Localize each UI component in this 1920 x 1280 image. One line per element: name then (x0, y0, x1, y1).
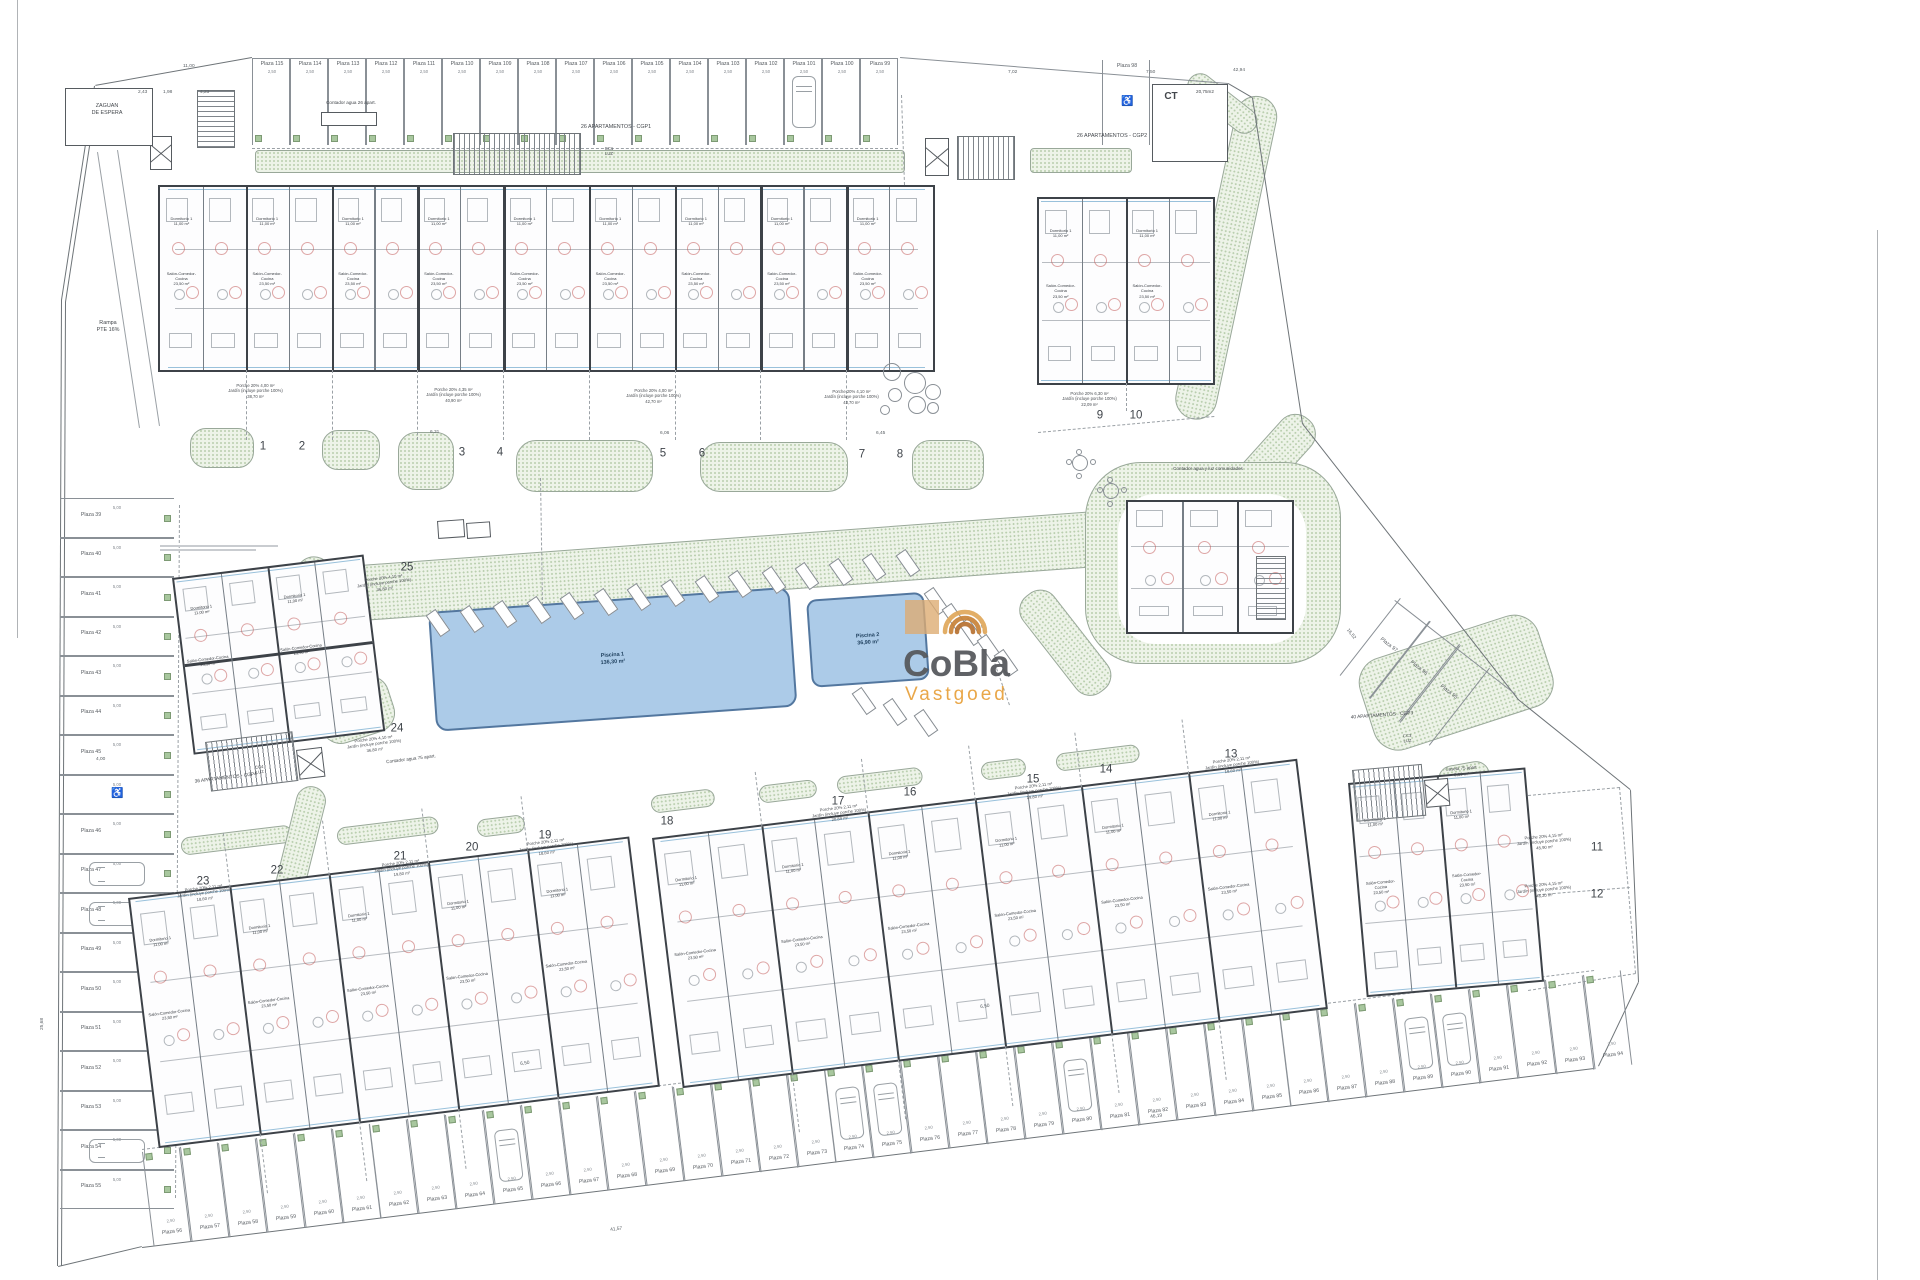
table-furniture (1062, 928, 1074, 940)
parking-stall: Plaza 415,00 (60, 577, 174, 617)
parcel-boundary-line (1518, 699, 1631, 790)
table-furniture (461, 998, 473, 1010)
bed-furniture (931, 817, 962, 852)
parking-stall-label: Plaza 51 (66, 1025, 116, 1032)
room-label: Salón-Comedor-Cocina 23,50 m² (990, 907, 1041, 923)
table-furniture (688, 974, 700, 986)
building-number: 20 (466, 841, 479, 856)
planter-square (411, 1120, 419, 1128)
parking-stall-label: Plaza 102 (747, 61, 785, 68)
unit-divider-wall (889, 187, 890, 370)
planter-square (486, 1111, 494, 1119)
door-swing-arc (1429, 891, 1443, 905)
room-label: Salón-Comedor-Cocina 23,50 m² (777, 933, 828, 949)
door-swing-arc (386, 242, 399, 255)
dimension-label: 2,50 (265, 1202, 304, 1212)
dimension-label: 2,50 (519, 69, 557, 74)
sofa-furniture (340, 696, 367, 713)
planter-square (638, 1092, 646, 1100)
unit-divider-wall (546, 187, 547, 370)
parking-stall-label: Plaza 97 (1371, 631, 1405, 660)
sofa-furniture (247, 708, 274, 725)
door-swing-arc (1051, 254, 1064, 267)
sofa-furniture (469, 333, 493, 348)
planter-square (331, 135, 338, 142)
outdoor-chair (1107, 477, 1113, 483)
building-number: 14 (1100, 763, 1113, 778)
door-swing-arc (703, 967, 717, 981)
parking-stall: Plaza 465,00 (60, 814, 174, 854)
garden-area-label: Porche 20% 4,35 m² Jardín (incluye porch… (406, 387, 501, 403)
building-number: 12 (1591, 888, 1604, 903)
door-swing-arc (424, 997, 438, 1011)
door-swing-arc (276, 1015, 290, 1029)
room-label: Dormitorio 1 11,00 m² (591, 216, 630, 226)
parking-stall-label: Plaza 63 (418, 1194, 457, 1205)
bed-furniture (229, 581, 255, 606)
garden-area-label: Porche 20% 6,30 m² Jardín (incluye porch… (1042, 391, 1137, 407)
door-swing-arc (601, 242, 614, 255)
room-label: Salón-Comedor-Cocina 23,50 m² (1447, 870, 1487, 889)
staircase (197, 90, 235, 148)
door-swing-arc (214, 668, 228, 682)
door-swing-arc (172, 242, 185, 255)
car-icon (1442, 1011, 1472, 1066)
table-furniture (431, 289, 442, 300)
dimension-label: 2,50 (329, 69, 367, 74)
parking-stall-label: Plaza 76 (911, 1134, 950, 1145)
dimension-label: 2,50 (1251, 1081, 1290, 1091)
car-windshield-line (879, 1091, 895, 1099)
dimension-label: 2,50 (720, 1146, 759, 1156)
table-furniture (1374, 900, 1386, 912)
door-swing-arc (252, 958, 266, 972)
bush (908, 396, 926, 414)
room-label: Salón-Comedor-Cocina 23,50 m² (1097, 894, 1148, 910)
room-label: Salón-Comedor-Cocina 23,50 m² (591, 271, 630, 287)
dimension-label: 2,50 (405, 69, 443, 74)
room-label: Salón-Comedor-Cocina 23,50 m² (677, 271, 716, 287)
table-furniture (903, 289, 914, 300)
area-label-ct_area: 20,75m2 (1188, 89, 1222, 95)
site-plan-canvas: Plaza 1152,50Plaza 1142,50Plaza 1132,50P… (0, 0, 1920, 1280)
sofa-furniture (1116, 979, 1148, 1002)
parking-stall-label: Plaza 40 (66, 551, 116, 558)
table-furniture (1115, 922, 1127, 934)
parking-stall-label: Plaza 72 (759, 1152, 798, 1163)
sofa-furniture (340, 333, 364, 348)
room-label: Salón-Comedor-Cocina 23,50 m² (543, 958, 590, 974)
footnote-text-placeholder (160, 549, 256, 551)
swirl-arcs-icon (903, 592, 999, 638)
room-label: Dormitorio 1 11,00 m² (248, 216, 287, 226)
sofa-furniture (689, 1032, 721, 1055)
planter-square (711, 135, 718, 142)
door-swing-arc (573, 979, 587, 993)
dimension-label: 1,98 (163, 90, 172, 96)
cgp2-block: Dormitorio 1 11,00 m²Salón-Comedor-Cocin… (1037, 197, 1215, 385)
table-furniture (688, 289, 699, 300)
garden-divider-line (322, 821, 330, 876)
table-furniture (860, 289, 871, 300)
planter-square (787, 135, 794, 142)
parking-stall-label: Plaza 43 (66, 670, 116, 677)
parcel-boundary-line (97, 152, 140, 428)
bed-furniture (381, 198, 402, 222)
sofa-furniture (1063, 986, 1095, 1009)
parcel-boundary-line (95, 57, 252, 86)
parking-stall-label: Plaza 39 (66, 512, 116, 519)
door-swing-arc (785, 897, 799, 911)
planter-square (373, 1125, 381, 1133)
room-label: Salón-Comedor-Cocina 23,50 m² (279, 642, 323, 658)
planter-square (749, 135, 756, 142)
dimension-label: 11,00 (183, 64, 195, 70)
car-icon (792, 76, 816, 128)
disabled-parking-icon: ♿ (111, 787, 123, 800)
parking-stall-label: Plaza 91 (1480, 1064, 1519, 1075)
planter-square (164, 554, 171, 561)
door-swing-arc (1215, 572, 1228, 585)
table-furniture (312, 1016, 324, 1028)
garden-divider-line (332, 370, 333, 440)
door-swing-arc (472, 242, 485, 255)
dimension-label: 2,50 (861, 69, 899, 74)
door-swing-arc (203, 964, 217, 978)
door-swing-arc (687, 242, 700, 255)
building-number: 11 (1591, 841, 1603, 856)
sofa-furniture (849, 1012, 881, 1035)
bush (925, 384, 941, 400)
planter-square (524, 1106, 532, 1114)
outdoor-chair (1076, 473, 1082, 479)
table-furniture (1200, 575, 1211, 586)
table-furniture (1460, 893, 1472, 905)
planter-square (221, 1143, 229, 1151)
room-label: Dormitorio 1 11,00 m² (848, 216, 887, 226)
room-label: Salón-Comedor-Cocina 23,50 m² (1041, 283, 1080, 299)
table-furniture (302, 289, 313, 300)
door-swing-arc (558, 242, 571, 255)
planter-square (164, 752, 171, 759)
elevator-shaft (150, 136, 172, 170)
planter-square (145, 1153, 153, 1161)
door-swing-arc (1129, 915, 1143, 929)
outdoor-chair (1097, 487, 1103, 493)
door-swing-arc (732, 904, 746, 918)
door-swing-arc (429, 242, 442, 255)
planter-square (445, 135, 452, 142)
car-icon (1063, 1058, 1093, 1113)
door-swing-arc (451, 934, 465, 948)
sofa-furniture (1177, 346, 1201, 361)
dimension-label: 2,50 (606, 1160, 645, 1170)
area-label-contador26: Contador agua 26 apart. (306, 100, 396, 106)
parking-stall-label: Plaza 99 (861, 61, 899, 68)
unit-divider-wall (803, 187, 804, 370)
sofa-furniture (611, 1037, 641, 1060)
parking-stall-label: Plaza 84 (1214, 1096, 1253, 1107)
dimension-label: 2,50 (443, 69, 481, 74)
sofa-furniture (297, 333, 321, 348)
parking-stall-label: Plaza 49 (66, 946, 116, 953)
parking-stall-label: Plaza 113 (329, 61, 367, 68)
dimension-label: 7,50 (1146, 70, 1155, 76)
room-label: Dormitorio 1 11,00 m² (162, 216, 201, 226)
dimension-label: 2,50 (557, 69, 595, 74)
parking-stall-label: Plaza 60 (304, 1208, 343, 1219)
dimension-label: 4,00 (96, 757, 105, 763)
room-label: Dormitorio 1 11,00 m² (505, 216, 544, 226)
parcel-boundary-line (1630, 790, 1639, 982)
bed-furniture (717, 844, 748, 879)
green-area (516, 440, 653, 492)
parking-stall-label: Plaza 56 (153, 1227, 192, 1238)
area-label-cc1: CC1 LUZ (596, 146, 622, 157)
car-windshield-line (98, 1143, 104, 1158)
planter-square (1586, 976, 1594, 984)
sofa-furniture (902, 1006, 934, 1029)
dimension-label: 2,50 (253, 69, 291, 74)
parking-stall-label: Plaza 86 (1290, 1087, 1329, 1098)
sofa-furniture (254, 333, 278, 348)
planter-square (676, 1088, 684, 1096)
parking-stall-label: Plaza 107 (557, 61, 595, 68)
car-icon (1404, 1016, 1434, 1071)
building-number: 10 (1130, 409, 1143, 424)
bed-furniture (896, 198, 917, 222)
room-label: Dormitorio 1 11,00 m² (1441, 807, 1481, 821)
parking-stall-label: Plaza 42 (66, 630, 116, 637)
dimension-label: 2,50 (1137, 1095, 1176, 1105)
building-number: 18 (661, 815, 674, 830)
door-swing-arc (1289, 895, 1303, 909)
unit-divider-wall (632, 187, 633, 370)
bed-furniture (1037, 804, 1068, 839)
car-icon (494, 1128, 524, 1183)
building-number: 3 (459, 446, 465, 461)
sofa-furniture (1276, 960, 1308, 983)
planter-square (255, 135, 262, 142)
dimension-label: 2,50 (1213, 1085, 1252, 1095)
table-furniture (742, 968, 754, 980)
table-furniture (1168, 915, 1180, 927)
dimension-label: 2,50 (1099, 1099, 1138, 1109)
planter-square (1434, 994, 1442, 1002)
dimension-label: 2,50 (633, 69, 671, 74)
dimension-label: 2,50 (341, 1192, 380, 1202)
table-furniture (260, 289, 271, 300)
dimension-label: 41,57 (610, 1227, 623, 1235)
dimension-label: 2,50 (1289, 1076, 1328, 1086)
dimension-label: 2,50 (1516, 1048, 1555, 1058)
table-furniture (1222, 909, 1234, 921)
sofa-furniture (201, 714, 228, 731)
dimension-label: 5,00 (60, 703, 174, 708)
outdoor-chair (1107, 501, 1113, 507)
dimension-label: 2,50 (1175, 1090, 1214, 1100)
parking-stall-label: Plaza 68 (608, 1171, 647, 1182)
parking-stall-label: Plaza 50 (66, 986, 116, 993)
green-area (650, 788, 716, 814)
table-furniture (817, 289, 828, 300)
door-swing-arc (325, 1009, 339, 1023)
disabled-parking-icon: ♿ (1121, 95, 1133, 108)
sofa-furniture (1193, 606, 1223, 616)
parking-stall-label: Plaza 73 (797, 1147, 836, 1158)
table-furniture (1053, 302, 1064, 313)
sofa-furniture (597, 333, 621, 348)
table-furniture (294, 662, 306, 674)
parking-stall-label: Plaza 88 (1366, 1078, 1405, 1089)
parking-stall-label: Plaza 58 (229, 1217, 268, 1228)
dimension-label: 2,50 (1554, 1043, 1593, 1053)
green-area (398, 432, 454, 490)
door-swing-arc (529, 286, 542, 299)
parcel-boundary-line (1877, 230, 1878, 1280)
planter-square (164, 515, 171, 522)
unit-divider-wall (718, 187, 719, 370)
planter-square (164, 673, 171, 680)
door-swing-arc (998, 871, 1012, 885)
door-swing-arc (615, 286, 628, 299)
outdoor-table (1072, 455, 1088, 471)
table-furniture (1275, 902, 1287, 914)
door-swing-arc (916, 941, 930, 955)
garden-area-label: Porche 20% 4,00 m² Jardín (incluye porch… (208, 383, 303, 399)
table-furniture (1008, 935, 1020, 947)
door-swing-arc (572, 286, 585, 299)
sofa-furniture (1503, 939, 1528, 958)
door-swing-arc (215, 242, 228, 255)
planter-square (1510, 985, 1518, 993)
parking-stall-label: Plaza 70 (684, 1161, 723, 1172)
table-furniture (517, 289, 528, 300)
parking-stall-label: Plaza 44 (66, 709, 116, 716)
green-area (912, 440, 984, 490)
door-swing-arc (550, 922, 564, 936)
planter-square (293, 135, 300, 142)
door-swing-arc (1212, 845, 1226, 859)
parking-stall-label: Plaza 67 (570, 1175, 609, 1186)
dimension-label: 2,50 (823, 69, 861, 74)
door-swing-arc (1023, 928, 1037, 942)
room-label: Salón-Comedor-Cocina 23,50 m² (248, 271, 287, 287)
dimension-label: 2,50 (1478, 1053, 1517, 1063)
door-swing-arc (1161, 572, 1174, 585)
dimension-label: 2,43 (138, 90, 147, 96)
area-label-cgp1: 26 APARTAMENTOS - CGP1 (550, 124, 682, 131)
door-swing-arc (1108, 298, 1121, 311)
door-swing-arc (314, 286, 327, 299)
green-area (1030, 148, 1132, 173)
sofa-furniture (1009, 992, 1041, 1015)
door-swing-arc (700, 286, 713, 299)
sofa-furniture (383, 333, 407, 348)
logo-text-vastgoed: Vastgoed (905, 685, 1043, 704)
door-swing-arc (1065, 298, 1078, 311)
parking-stall-label: Plaza 74 (835, 1143, 874, 1154)
dimension-label: 2,50 (367, 69, 405, 74)
car-icon (89, 862, 145, 886)
room-label: Dormitorio 1 11,00 m² (334, 216, 373, 226)
door-swing-arc (194, 628, 208, 642)
parcel-boundary-line (58, 1246, 142, 1267)
door-swing-arc (678, 910, 692, 924)
sofa-furniture (214, 1086, 244, 1109)
table-furniture (388, 289, 399, 300)
door-swing-arc (892, 884, 906, 898)
bed-furniture (1487, 784, 1511, 813)
sun-lounger (914, 709, 939, 737)
door-swing-arc (260, 662, 274, 676)
utility-box (466, 521, 491, 539)
room-label: Salón-Comedor-Cocina 23,50 m² (1361, 877, 1401, 896)
car-windshield-line (796, 86, 811, 92)
parking-stall-label: Plaza 106 (595, 61, 633, 68)
building-number: 4 (497, 446, 503, 461)
room-label: Salón-Comedor-Cocina 23,50 m² (419, 271, 458, 287)
parcel-boundary-line (900, 57, 1228, 84)
planter-square (407, 135, 414, 142)
unit-divider-wall (460, 187, 461, 370)
dimension-label: 2,50 (986, 1113, 1025, 1123)
table-furniture (1096, 302, 1107, 313)
table-furniture (474, 289, 485, 300)
sofa-furniture (1048, 346, 1072, 361)
door-swing-arc (240, 623, 254, 637)
dimension-label: 2,50 (568, 1164, 607, 1174)
parking-stall-label: Plaza 77 (949, 1129, 988, 1140)
dimension-label: 2,50 (1327, 1071, 1366, 1081)
table-furniture (1145, 575, 1156, 586)
parking-stall: Plaza 1082,50 (518, 58, 556, 145)
table-furniture (201, 673, 213, 685)
parking-stall-label: Plaza 89 (1404, 1073, 1443, 1084)
dimension-label: 2,50 (151, 1216, 190, 1226)
room-label: Dormitorio 1 11,00 m² (677, 216, 716, 226)
sofa-furniture (169, 333, 193, 348)
parking-stall-label: Plaza 87 (1328, 1082, 1367, 1093)
door-swing-arc (1158, 851, 1172, 865)
sofa-furniture (812, 333, 836, 348)
dimension-label: 2,50 (682, 1151, 721, 1161)
car-windshield-line (98, 867, 104, 882)
table-furniture (262, 1022, 274, 1034)
door-swing-arc (644, 242, 657, 255)
planter-square (369, 135, 376, 142)
parcel-boundary-line (117, 150, 160, 426)
door-swing-arc (400, 286, 413, 299)
planter-square (600, 1097, 608, 1105)
door-swing-arc (658, 286, 671, 299)
parking-stall-label: Plaza 80 (1063, 1115, 1102, 1126)
unit-divider-wall (1082, 199, 1083, 383)
table-furniture (411, 1004, 423, 1016)
sofa-furniture (1134, 346, 1158, 361)
sofa-furniture (1373, 950, 1398, 969)
garden-divider-line (675, 370, 676, 440)
green-area (476, 814, 526, 838)
unit-divider-wall (1169, 199, 1170, 383)
table-furniture (646, 289, 657, 300)
staircase (453, 133, 581, 175)
green-area (700, 442, 848, 492)
parking-stall: Plaza 455,00 (60, 735, 174, 775)
sofa-furniture (726, 333, 750, 348)
car-icon (873, 1081, 903, 1136)
parking-stall-label: Plaza 55 (66, 1183, 116, 1190)
